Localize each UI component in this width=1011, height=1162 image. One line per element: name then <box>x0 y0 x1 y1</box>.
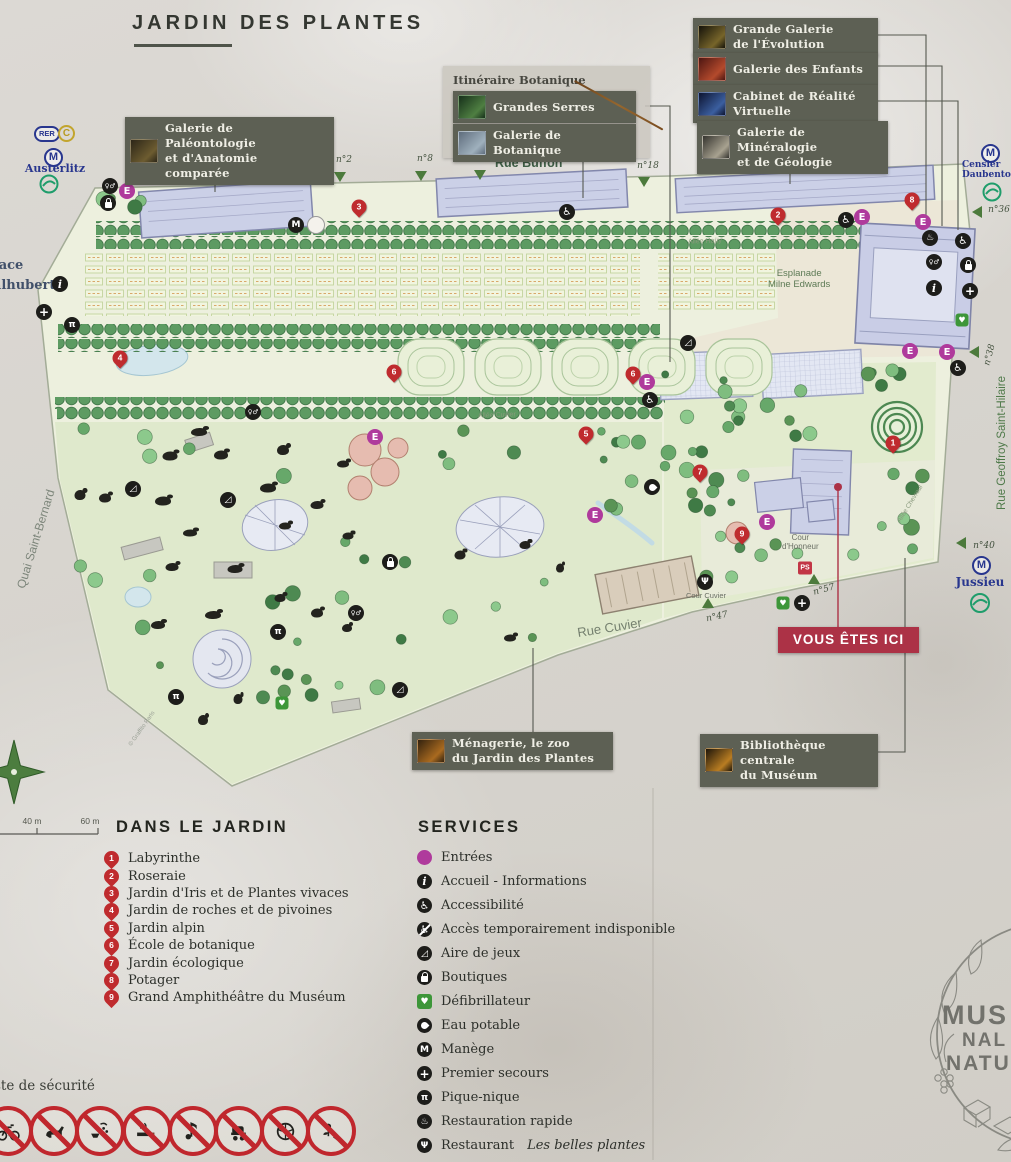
garden-number-marker: 5 <box>575 423 596 444</box>
service-icon: ♥ <box>417 994 432 1009</box>
animal-silhouette <box>205 611 221 619</box>
map-service-icon: ◿ <box>125 481 141 497</box>
thumbnail-bibliotheque <box>705 748 733 772</box>
animal-silhouette <box>277 445 289 455</box>
gate-triangle-icon <box>474 170 486 180</box>
scale-60m: 60 m <box>81 816 100 826</box>
legend-service-item: ◿ Aire de jeux <box>417 946 747 970</box>
batobus-icon <box>38 174 60 194</box>
label-itineraire-botanique: Itinéraire Botanique <box>453 73 586 87</box>
prohibition-sign-icon <box>75 1106 125 1156</box>
animal-silhouette <box>343 533 354 540</box>
station-jussieu: Jussieu <box>948 575 1011 589</box>
animal-silhouette <box>279 523 291 530</box>
garden-number-marker: 7 <box>689 461 710 482</box>
service-icon: + <box>417 1066 432 1081</box>
animal-silhouette <box>520 541 531 549</box>
garden-number-marker: 1 <box>882 432 903 453</box>
prohibition-sign-icon <box>29 1106 79 1156</box>
animal-silhouette <box>75 490 86 500</box>
label-cour-cuvier: Cour Cuvier <box>686 591 726 600</box>
street-number-label: n°47 <box>705 610 728 624</box>
legend-service-item: ♨ Restauration rapide <box>417 1114 747 1138</box>
animal-silhouette <box>260 484 276 493</box>
animal-silhouette <box>166 563 179 571</box>
thumbnail-menagerie <box>417 739 445 763</box>
entrance-marker: E <box>759 514 775 530</box>
gate-triangle-icon <box>969 346 979 358</box>
map-service-icon: ♀♂ <box>348 605 364 621</box>
animal-silhouette <box>214 451 228 460</box>
svg-text:NAL: NAL <box>962 1030 1007 1051</box>
label-grande-galerie-evolution: Grande Galeriede l'Évolution <box>693 18 878 56</box>
leaf-number-icon: 5 <box>101 918 122 939</box>
map-service-icon: π <box>270 624 286 640</box>
legend-service-item: i Accueil - Informations <box>417 874 747 898</box>
garden-number-marker: 6 <box>383 361 404 382</box>
map-service-icon: ♥ <box>777 597 790 610</box>
garden-number-marker: 4 <box>109 347 130 368</box>
animal-silhouette <box>342 624 352 632</box>
street-number-label: n°57 <box>812 582 836 597</box>
label-map-credit: © Graffito Paris <box>128 710 156 747</box>
thumbnail-mineralogie <box>702 135 730 159</box>
animal-silhouette <box>183 530 197 537</box>
you-are-here-badge: VOUS ÊTES ICI <box>778 627 919 653</box>
map-service-icon: ♀♂ <box>926 254 942 270</box>
service-icon <box>417 850 432 865</box>
animal-silhouette <box>504 635 516 642</box>
legend-service-item: Boutiques <box>417 970 747 994</box>
leaf-number-icon: 7 <box>101 952 122 973</box>
label-galerie-paleontologie: Galerie de Paléontologieet d'Anatomie co… <box>125 117 334 185</box>
gate-triangle-icon <box>638 177 650 187</box>
map-service-icon: ◿ <box>392 682 408 698</box>
label-cour-honneur: Courd'Honneur <box>782 533 819 551</box>
legend-garden-heading: DANS LE JARDIN <box>116 818 288 837</box>
leaf-number-icon: 3 <box>101 883 122 904</box>
rer-line-c-icon: C <box>58 125 75 142</box>
entrance-marker: E <box>639 374 655 390</box>
security-post-marker: PS <box>798 562 812 575</box>
thumbnail-cabinet <box>698 92 726 116</box>
map-service-icon: i <box>926 280 942 296</box>
building-amphitheatre <box>755 475 835 528</box>
legend-service-item: Eau potable <box>417 1018 747 1042</box>
prohibition-sign-icon <box>260 1106 310 1156</box>
animal-silhouette <box>151 621 165 629</box>
service-icon <box>417 1018 432 1033</box>
service-icon: i <box>417 874 432 889</box>
legend-garden-item: 3 Jardin d'Iris et de Plantes vivaces <box>104 885 404 902</box>
entrance-marker: E <box>119 183 135 199</box>
label-galerie-botanique: Galerie de Botanique <box>453 124 636 162</box>
service-icon: ♿ <box>417 922 432 937</box>
garden-number-marker: 6 <box>622 363 643 384</box>
street-rue-cuvier: Rue Cuvier <box>576 615 643 640</box>
zoo-structures <box>121 432 748 713</box>
street-number-label: n°2 <box>336 155 352 165</box>
legend-garden-item: 5 Jardin alpin <box>104 920 404 937</box>
garden-number-marker: 9 <box>731 523 752 544</box>
map-service-icon: π <box>168 689 184 705</box>
gate-triangle-icon <box>334 172 346 182</box>
label-cabinet-realite-virtuelle: Cabinet de RéalitéVirtuelle <box>693 85 878 123</box>
museum-logo: MUS NAL NATU <box>886 912 1011 1162</box>
leaf-number-icon: 4 <box>101 900 122 921</box>
garden-number-marker: 2 <box>767 204 788 225</box>
jussieu-bus-icon <box>968 592 992 614</box>
gate-triangle-icon <box>415 171 427 181</box>
map-service-icon: + <box>794 595 810 611</box>
animal-silhouette <box>228 565 243 573</box>
animal-silhouette <box>311 609 323 618</box>
thumbnail-paleontologie <box>130 139 158 163</box>
building-bibliotheque <box>791 449 852 535</box>
label-bibliotheque: Bibliothèque centraledu Muséum <box>700 734 878 787</box>
map-service-icon: ♥ <box>276 697 289 710</box>
svg-text:MUS: MUS <box>942 1000 1008 1030</box>
rer-logo: RER <box>34 126 60 142</box>
legend-garden-list: 1 Labyrinthe 2 Roseraie 3 Jardin d'Iris … <box>104 850 404 1007</box>
map-service-icon <box>382 554 398 570</box>
animal-silhouette <box>99 494 111 503</box>
label-galerie-mineralogie: Galerie de Minéralogieet de Géologie <box>697 121 888 174</box>
legend-garden-item: 1 Labyrinthe <box>104 850 404 867</box>
legend-service-item: ♿ Accessibilité <box>417 898 747 922</box>
map-service-icon <box>100 195 116 211</box>
security-post-note: ste de sécurité <box>0 1078 95 1094</box>
censier-bus-icon <box>981 182 1003 202</box>
label-grandes-serres: Grandes Serres <box>453 91 636 123</box>
service-icon: Ψ <box>417 1138 432 1153</box>
leaf-number-icon: 1 <box>101 848 122 869</box>
map-service-icon: M <box>288 217 304 233</box>
legend-garden-item: 8 Potager <box>104 972 404 989</box>
map-service-icon: + <box>962 283 978 299</box>
label-allee-cuvier: Allée Cuvier <box>478 411 516 419</box>
label-galerie-enfants: Galerie des Enfants <box>693 53 878 85</box>
building-botanique <box>436 169 628 217</box>
prohibition-sign-icon <box>122 1106 172 1156</box>
map-service-icon: π <box>64 317 80 333</box>
scale-40m: 40 m <box>23 816 42 826</box>
service-icon: π <box>417 1090 432 1105</box>
building-paleontologie <box>139 180 314 238</box>
svg-text:NATU: NATU <box>946 1052 1011 1075</box>
gate-triangle-icon <box>972 206 982 218</box>
legend-service-item: M Manège <box>417 1042 747 1066</box>
animal-silhouette <box>556 564 564 573</box>
label-allee-hauy: Allée Haüy <box>688 237 722 245</box>
legend-service-item: + Premier secours <box>417 1066 747 1090</box>
map-service-icon: ♨ <box>922 230 938 246</box>
map-service-icon: ♿ <box>950 360 966 376</box>
animal-silhouette <box>163 452 178 461</box>
animal-silhouette <box>234 694 243 704</box>
park-map-sign: JARDIN DES PLANTES Galerie de Paléontolo… <box>0 0 1011 1162</box>
gate-triangle-icon <box>956 537 966 549</box>
leaf-number-icon: 8 <box>101 970 122 991</box>
service-icon: ♨ <box>417 1114 432 1129</box>
service-icon: ◿ <box>417 946 432 961</box>
legend-service-item: ♥ Défibrillateur <box>417 994 747 1018</box>
street-quai-saint-bernard: Quai Saint-Bernard <box>14 488 57 590</box>
title-underline <box>134 44 232 47</box>
labyrinth <box>872 402 922 452</box>
building-restaurant <box>595 556 699 614</box>
you-are-here-dot <box>834 483 842 491</box>
map-service-icon: ♿ <box>642 392 658 408</box>
animal-silhouette <box>311 501 324 509</box>
street-rue-geoffroy: Rue Geoffroy Saint-Hilaire <box>996 376 1008 510</box>
legend-services-heading: SERVICES <box>418 818 520 837</box>
legend-garden-item: 6 École de botanique <box>104 937 404 954</box>
legend-service-item: Ψ RestaurantLes belles plantes <box>417 1138 747 1162</box>
map-service-icon: ♿ <box>955 233 971 249</box>
map-service-icon <box>307 216 325 234</box>
street-number-label: n°40 <box>973 541 995 551</box>
prohibition-sign-icon <box>0 1106 33 1156</box>
entrance-marker: E <box>902 343 918 359</box>
compass-icon <box>0 736 46 808</box>
legend-services-list: Entrées i Accueil - Informations ♿ Acces… <box>417 850 747 1162</box>
street-number-label: n°36 <box>988 205 1010 215</box>
prohibition-sign-icon <box>306 1106 356 1156</box>
entrance-marker: E <box>939 344 955 360</box>
map-service-icon: Ψ <box>697 574 713 590</box>
prohibition-sign-icon <box>168 1106 218 1156</box>
thumbnail-evolution <box>698 25 726 49</box>
metro-icon-jussieu: M <box>972 556 991 575</box>
entrance-marker: E <box>587 507 603 523</box>
map-service-icon: + <box>36 304 52 320</box>
legend-garden-item: 7 Jardin écologique <box>104 954 404 971</box>
scale-bar <box>0 828 98 834</box>
map-service-icon: ◿ <box>680 335 696 351</box>
service-icon: M <box>417 1042 432 1057</box>
leaf-number-icon: 9 <box>101 987 122 1008</box>
map-service-icon: ♿ <box>559 204 575 220</box>
thumbnail-enfants <box>698 57 726 81</box>
label-esplanade: EsplanadeMilne Edwards <box>768 268 830 290</box>
label-menagerie: Ménagerie, le zoodu Jardin des Plantes <box>412 732 613 770</box>
entrance-marker: E <box>367 429 383 445</box>
building-grande-galerie <box>855 223 975 349</box>
service-icon: ♿ <box>417 898 432 913</box>
legend-garden-item: 9 Grand Amphithéâtre du Muséum <box>104 989 404 1006</box>
map-service-icon: ♿ <box>838 212 854 228</box>
thumbnail-serres <box>458 95 486 119</box>
street-place-valhubert: PlaceValhubert <box>0 256 55 296</box>
legend-garden-item: 2 Roseraie <box>104 867 404 884</box>
entrance-marker: E <box>915 214 931 230</box>
map-service-icon: ♀♂ <box>102 178 118 194</box>
street-number-label: n°18 <box>637 161 659 171</box>
page-title: JARDIN DES PLANTES <box>132 12 424 35</box>
prohibition-sign-icon <box>214 1106 264 1156</box>
building-grandes-serres <box>659 349 863 399</box>
map-service-icon: ◿ <box>220 492 236 508</box>
leaf-number-icon: 6 <box>101 935 122 956</box>
animal-silhouette <box>455 551 466 560</box>
animal-silhouette <box>155 497 171 506</box>
map-service-icon <box>960 257 976 273</box>
service-icon <box>417 970 432 985</box>
garden-number-marker: 3 <box>348 196 369 217</box>
map-service-icon: ♀♂ <box>245 404 261 420</box>
animal-silhouette <box>198 715 208 725</box>
legend-service-item: Entrées <box>417 850 747 874</box>
map-service-icon <box>644 479 660 495</box>
station-censier-daubenton: CensierDaubenton <box>962 160 1011 180</box>
animal-silhouette <box>191 428 207 436</box>
legend-service-item: ♿ Accès temporairement indisponible <box>417 922 747 946</box>
animal-silhouette <box>275 594 286 602</box>
animal-silhouette <box>337 461 349 468</box>
garden-number-marker: 8 <box>901 189 922 210</box>
gate-triangle-icon <box>808 574 820 584</box>
label-allee-chevreul: Allée Chevreul <box>896 484 924 524</box>
legend-garden-item: 4 Jardin de roches et de pivoines <box>104 902 404 919</box>
street-number-label: n°8 <box>417 154 433 164</box>
entrance-marker: E <box>854 209 870 225</box>
thumbnail-botanique <box>458 131 486 155</box>
legend-service-item: π Pique-nique <box>417 1090 747 1114</box>
map-service-icon: ♥ <box>956 314 969 327</box>
leaf-number-icon: 2 <box>101 865 122 886</box>
street-number-label: n°38 <box>982 343 997 367</box>
